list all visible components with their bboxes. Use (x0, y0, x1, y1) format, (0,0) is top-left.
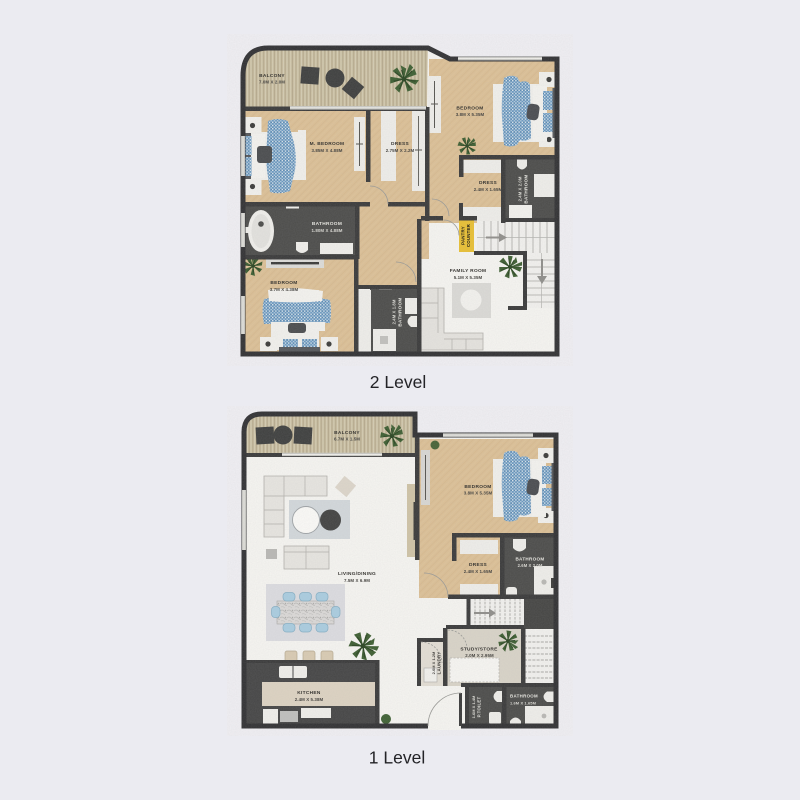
svg-text:2 Level: 2 Level (370, 372, 426, 392)
svg-text:1 Level: 1 Level (369, 748, 425, 768)
